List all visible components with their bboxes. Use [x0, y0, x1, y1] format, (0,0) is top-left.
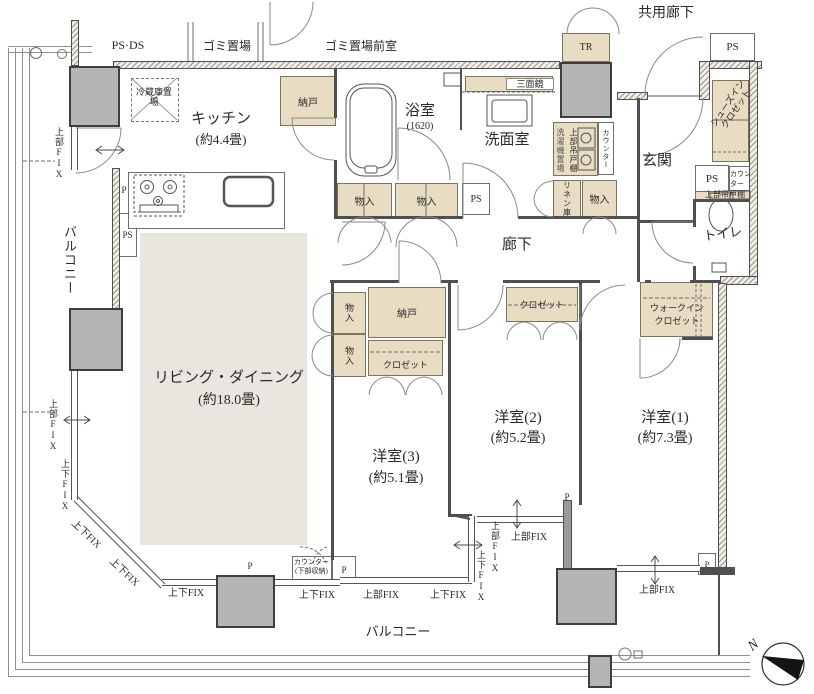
- label-kitchen-size: (約4.4畳): [163, 133, 279, 148]
- floor-plan: TR 納戸 リネン庫 物入 物入 物入 クロゼット 納戸 物入 物入 PS PS…: [0, 0, 814, 694]
- label-wic-1: ウォークイン: [640, 303, 714, 313]
- label-bath-size: (1620): [396, 121, 444, 133]
- label-mirror: 三面鏡: [506, 78, 554, 90]
- label-bedroom3: 洋室(3): [364, 449, 428, 466]
- label-fix-bottom-3: 上部FIX: [352, 590, 410, 602]
- label-fix-bed2-door: 上部FIX: [487, 520, 500, 574]
- label-bath: 浴室: [396, 103, 444, 120]
- label-refrigerator: 冷蔵庫置場: [133, 87, 175, 108]
- stove-icon: [134, 175, 184, 216]
- label-fix-bed3-east: 上下FIX: [473, 548, 486, 604]
- label-wic-2: クロゼット: [640, 316, 714, 326]
- label-upper-cabinet-toilet: 上部吊戸棚: [694, 190, 756, 199]
- label-fix-bottom-2: 上下FIX: [288, 590, 346, 602]
- washer-icon: [578, 128, 595, 170]
- label-fix-bottom-1: 上下FIX: [158, 588, 214, 600]
- washbasin-icon: [462, 92, 556, 126]
- label-upper-cabinet-wash: 上部吊戸棚: [566, 125, 578, 175]
- label-closet-bed3: クロゼット: [368, 360, 443, 370]
- label-fix-left-mid: 上部FIX: [44, 396, 58, 454]
- label-common-corridor: 共用廊下: [628, 6, 704, 22]
- door-arcs: [76, 2, 703, 378]
- label-p-bed2: P: [560, 492, 574, 502]
- label-washroom: 洗面室: [474, 132, 540, 149]
- label-bedroom1-size: (約7.3畳): [621, 431, 709, 447]
- label-balcony-left: バルコニー: [60, 200, 76, 320]
- label-living: リビング・ダイニング: [146, 370, 312, 387]
- label-living-size: (約18.0畳): [154, 393, 304, 409]
- closet-arcs: [312, 181, 616, 395]
- label-fix-left-low: 上下FIX: [56, 456, 70, 514]
- label-bedroom2-size: (約5.2畳): [474, 431, 562, 447]
- label-fix-bottom-4: 上下FIX: [418, 590, 478, 602]
- label-fix-bed1-south: 上部FIX: [630, 585, 684, 597]
- label-hallway: 廊下: [494, 237, 540, 254]
- label-entrance: 玄関: [634, 153, 680, 170]
- label-garbage-anteroom: ゴミ置場前室: [318, 40, 404, 54]
- label-bedroom1: 洋室(1): [633, 410, 697, 427]
- label-p-pillar-mid: P: [243, 561, 257, 571]
- label-ps-ds: PS·DS: [100, 39, 156, 53]
- label-balcony-bottom: バルコニー: [362, 625, 434, 640]
- label-washer: 洗濯機置場: [553, 125, 565, 175]
- label-bedroom2: 洋室(2): [486, 410, 550, 427]
- label-p-left: P: [118, 185, 130, 195]
- label-counter-living-1: カウンター: [290, 558, 333, 566]
- label-bedroom3-size: (約5.1畳): [352, 471, 440, 487]
- sink-icon: [224, 177, 273, 206]
- label-fix-bed2-south: 上部FIX: [503, 532, 555, 544]
- label-garbage-area: ゴミ置場: [196, 40, 258, 54]
- compass-icon: [762, 643, 804, 685]
- label-kitchen: キッチン: [163, 111, 279, 128]
- label-counter-living-2: (下部収納): [290, 567, 333, 575]
- label-fix-left-top: 上部FIX: [50, 124, 64, 182]
